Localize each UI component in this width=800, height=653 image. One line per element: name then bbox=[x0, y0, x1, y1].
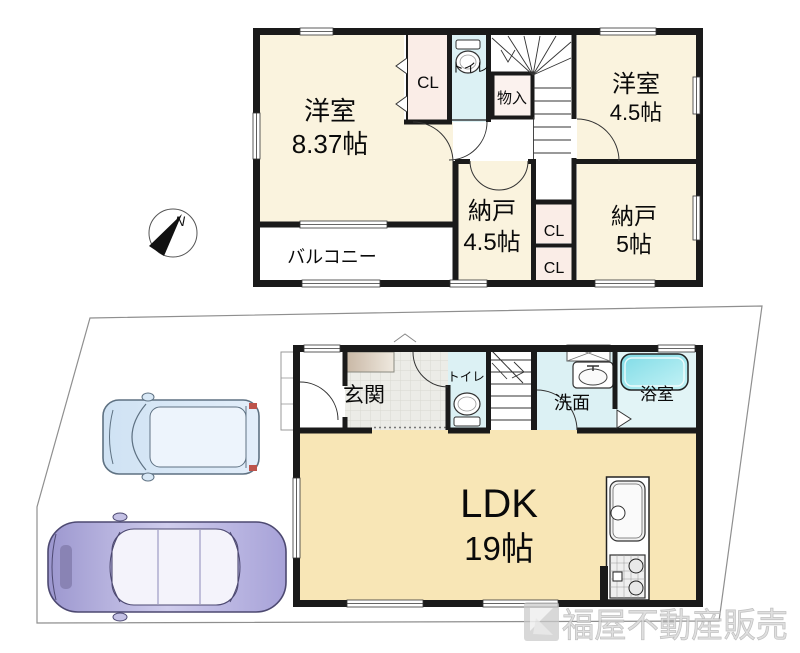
first-floor-plan: 玄関 トイレ 洗面 浴室 LDK 19帖 bbox=[281, 334, 700, 607]
hood-grille bbox=[60, 545, 72, 589]
label-western-room-45-size: 4.5帖 bbox=[610, 100, 663, 125]
side-mirror bbox=[142, 473, 154, 481]
room-western-room-45 bbox=[577, 35, 696, 161]
label-closet-upper: CL bbox=[544, 223, 565, 240]
label-washroom: 洗面 bbox=[554, 393, 590, 413]
label-toilet-1f: トイレ bbox=[447, 370, 485, 384]
label-western-room-main-size: 8.37帖 bbox=[292, 129, 369, 159]
label-entrance: 玄関 bbox=[343, 384, 385, 407]
kitchen-counter bbox=[607, 477, 650, 600]
company-logo-icon bbox=[524, 602, 559, 641]
label-bathroom: 浴室 bbox=[640, 385, 674, 404]
stove-icon bbox=[610, 555, 645, 598]
room-stairs-1f bbox=[488, 352, 534, 430]
label-storage-45: 納戸 bbox=[468, 198, 516, 225]
floorplan-page: N bbox=[0, 0, 800, 653]
taillight bbox=[249, 465, 257, 471]
floorplan-canvas: N bbox=[0, 0, 800, 653]
shoe-cabinet bbox=[347, 352, 394, 372]
side-mirror bbox=[113, 613, 127, 621]
label-storage-45-size: 4.5帖 bbox=[463, 229, 520, 256]
label-western-room-45: 洋室 bbox=[612, 71, 660, 98]
washbasin-icon bbox=[573, 362, 613, 388]
label-toilet-2f: トイレ bbox=[451, 61, 489, 75]
taillight bbox=[249, 403, 257, 409]
label-closet-main: CL bbox=[417, 73, 439, 92]
side-mirror bbox=[142, 393, 154, 401]
company-logo-text: 福屋不動産販売 bbox=[562, 607, 788, 645]
compass-north-label: N bbox=[175, 213, 186, 229]
label-storage-5-size: 5帖 bbox=[616, 231, 652, 257]
label-western-room-main: 洋室 bbox=[304, 96, 356, 126]
label-storage-inset: 物入 bbox=[497, 90, 527, 107]
toilet-icon bbox=[454, 393, 480, 426]
label-ldk-size: 19帖 bbox=[464, 530, 534, 567]
car-sedan bbox=[48, 513, 286, 621]
kitchen-wall-stub bbox=[600, 566, 608, 604]
car-wagon bbox=[103, 393, 259, 481]
label-ldk: LDK bbox=[460, 482, 538, 526]
label-storage-5: 納戸 bbox=[611, 203, 657, 229]
side-mirror bbox=[113, 513, 127, 521]
company-logo: 福屋不動産販売 bbox=[524, 602, 788, 645]
label-closet-lower: CL bbox=[544, 260, 565, 277]
faucet-icon bbox=[611, 506, 625, 520]
compass: N bbox=[149, 209, 197, 257]
label-balcony: バルコニー bbox=[287, 247, 377, 267]
